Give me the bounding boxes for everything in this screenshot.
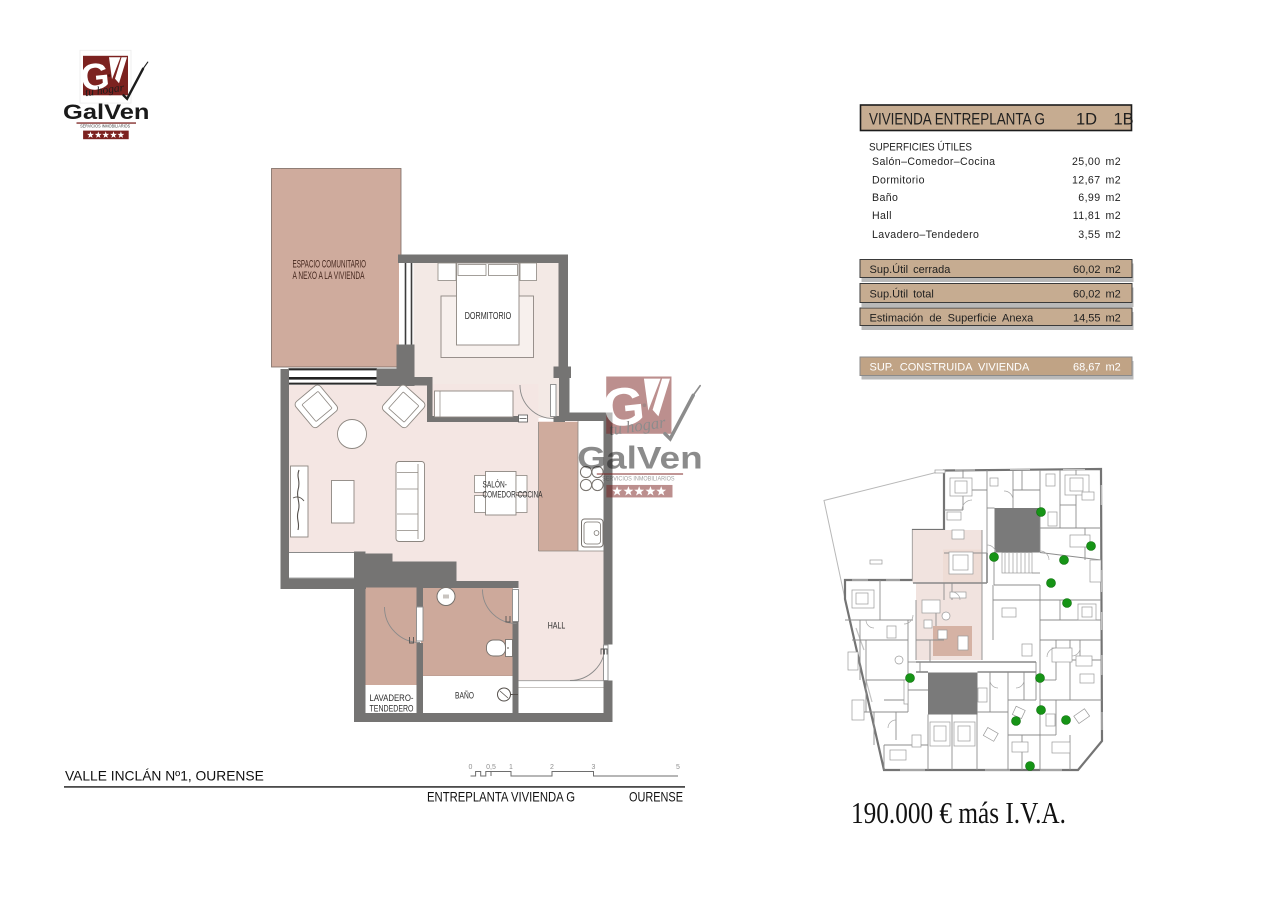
svg-text:COMEDOR-COCINA: COMEDOR-COCINA: [483, 490, 544, 500]
svg-text:Hall: Hall: [872, 210, 892, 222]
svg-text:25,00: 25,00: [1072, 156, 1101, 168]
svg-text:m2: m2: [1106, 264, 1121, 276]
svg-text:14,55: 14,55: [1073, 313, 1101, 325]
svg-text:m2: m2: [1106, 313, 1121, 325]
svg-text:m2: m2: [1106, 362, 1121, 374]
svg-text:2: 2: [550, 764, 554, 771]
svg-text:60,02: 60,02: [1073, 264, 1101, 276]
svg-text:ENTREPLANTA VIVIENDA G: ENTREPLANTA VIVIENDA G: [427, 790, 575, 805]
svg-text:0,5: 0,5: [486, 764, 496, 771]
svg-text:Salón–Comedor–Cocina: Salón–Comedor–Cocina: [872, 156, 995, 168]
svg-text:DORMITORIO: DORMITORIO: [465, 311, 512, 322]
svg-text:GalVen: GalVen: [577, 440, 702, 475]
svg-text:BAÑO: BAÑO: [455, 691, 474, 702]
svg-text:HALL: HALL: [548, 621, 566, 632]
svg-text:m2: m2: [1106, 156, 1122, 168]
svg-text:190.000 € más I.V.A.: 190.000 € más I.V.A.: [851, 795, 1066, 830]
svg-text:SALÓN-: SALÓN-: [483, 480, 508, 490]
svg-text:Estimación de Superficie Anexa: Estimación de Superficie Anexa: [870, 313, 1035, 325]
svg-text:SERVICIOS INMOBILIARIOS: SERVICIOS INMOBILIARIOS: [602, 476, 675, 483]
svg-text:m2: m2: [1106, 175, 1122, 187]
svg-text:68,67: 68,67: [1073, 362, 1101, 374]
svg-text:m2: m2: [1106, 289, 1121, 301]
svg-text:11,81: 11,81: [1073, 210, 1101, 222]
svg-text:3,55: 3,55: [1078, 229, 1100, 241]
svg-text:OURENSE: OURENSE: [629, 790, 683, 805]
svg-text:GalVen: GalVen: [63, 100, 150, 124]
svg-text:6,99: 6,99: [1078, 192, 1100, 204]
svg-text:SUPERFICIES ÚTILES: SUPERFICIES ÚTILES: [869, 141, 972, 154]
svg-text:1D: 1D: [1076, 111, 1097, 129]
svg-text:Sup.Útil total: Sup.Útil total: [870, 288, 934, 301]
svg-text:12,67: 12,67: [1072, 175, 1101, 187]
svg-text:60,02: 60,02: [1073, 289, 1101, 301]
svg-text:SERVICIOS INMOBILIARIOS: SERVICIOS INMOBILIARIOS: [80, 124, 130, 129]
svg-text:Dormitorio: Dormitorio: [872, 175, 925, 187]
svg-text:VIVIENDA ENTREPLANTA G: VIVIENDA ENTREPLANTA G: [869, 111, 1045, 129]
svg-text:TENDEDERO: TENDEDERO: [370, 703, 414, 714]
svg-text:A NEXO A LA VIVIENDA: A NEXO A LA VIVIENDA: [293, 270, 365, 282]
svg-text:LAVADERO-: LAVADERO-: [370, 692, 414, 703]
svg-text:ESPACIO COMUNITARIO: ESPACIO COMUNITARIO: [293, 259, 367, 271]
svg-text:m2: m2: [1106, 229, 1122, 241]
svg-text:1: 1: [509, 764, 513, 771]
svg-text:m2: m2: [1106, 192, 1122, 204]
svg-text:5: 5: [676, 764, 680, 771]
svg-text:m2: m2: [1106, 210, 1122, 222]
svg-text:VALLE INCLÁN Nº1, OURENSE: VALLE INCLÁN Nº1, OURENSE: [65, 768, 264, 784]
svg-text:3: 3: [592, 764, 596, 771]
svg-text:0: 0: [469, 764, 473, 771]
svg-text:Lavadero–Tendedero: Lavadero–Tendedero: [872, 229, 979, 241]
svg-text:1B: 1B: [1114, 111, 1134, 129]
svg-text:Baño: Baño: [872, 192, 898, 204]
svg-text:Sup.Útil cerrada: Sup.Útil cerrada: [870, 263, 952, 276]
svg-text:SUP. CONSTRUIDA VIVIENDA: SUP. CONSTRUIDA VIVIENDA: [870, 362, 1030, 374]
